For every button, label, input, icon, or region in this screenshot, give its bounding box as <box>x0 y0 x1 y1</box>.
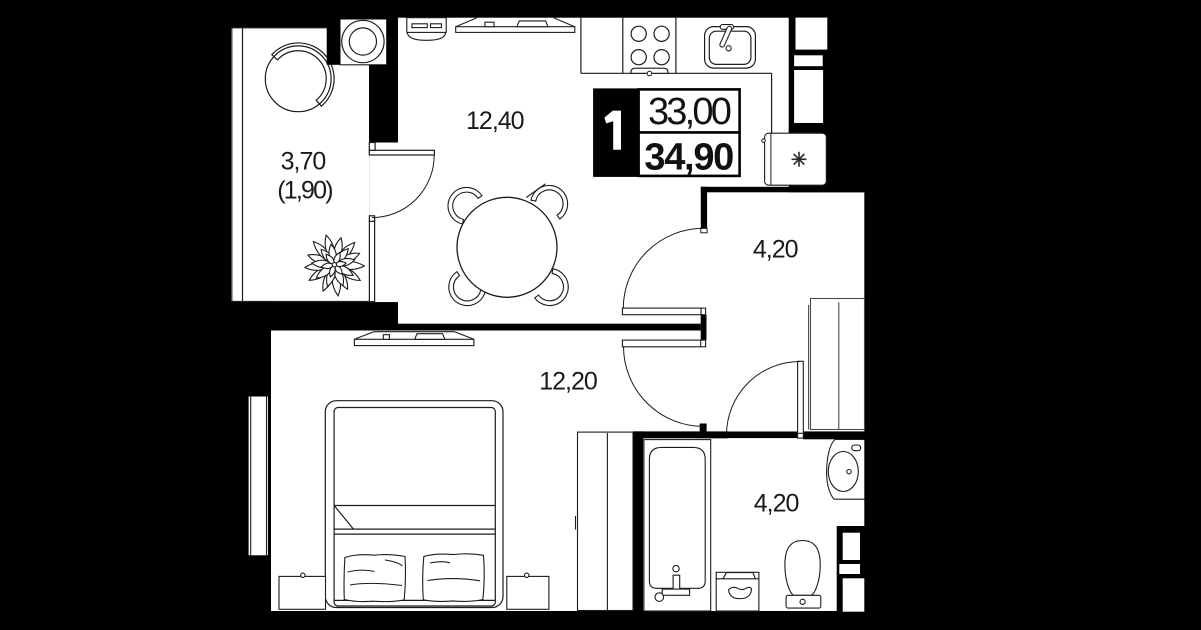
svg-text:12,40: 12,40 <box>466 107 524 135</box>
svg-text:4,20: 4,20 <box>753 236 798 264</box>
svg-text:12,20: 12,20 <box>539 368 597 396</box>
svg-text:(1,90): (1,90) <box>277 177 332 205</box>
svg-text:4,20: 4,20 <box>754 489 799 517</box>
svg-text:3,70: 3,70 <box>281 147 326 175</box>
svg-text:34,90: 34,90 <box>644 136 733 178</box>
svg-text:33,00: 33,00 <box>648 91 731 133</box>
